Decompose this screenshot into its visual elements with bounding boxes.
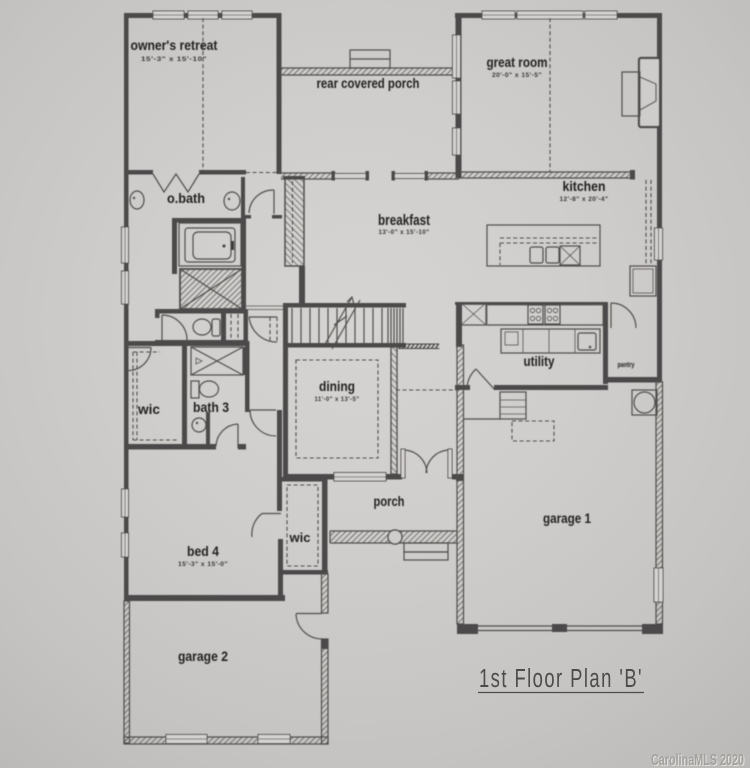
svg-text:great room: great room [487, 54, 548, 70]
svg-text:zzzzzzzzzz: zzzzzzzzzz [398, 340, 439, 352]
svg-text:porch: porch [374, 494, 405, 509]
svg-text:breakfast: breakfast [378, 212, 430, 229]
svg-text:wic: wic [288, 531, 310, 545]
svg-text:owner's retreat: owner's retreat [131, 37, 218, 53]
svg-text:dining: dining [319, 378, 355, 394]
svg-text:garage 1: garage 1 [543, 510, 591, 526]
svg-text:11'-0" x 13'-5": 11'-0" x 13'-5" [315, 396, 360, 403]
svg-text:bath 3: bath 3 [193, 400, 229, 415]
svg-text:utility: utility [524, 354, 555, 369]
svg-text:bed 4: bed 4 [187, 543, 219, 559]
svg-text:pantry: pantry [618, 362, 635, 369]
svg-text:kitchen: kitchen [563, 178, 606, 194]
svg-text:1st Floor Plan 'B': 1st Floor Plan 'B' [479, 665, 643, 693]
svg-text:CarolinaMLS 2020: CarolinaMLS 2020 [651, 752, 744, 768]
svg-text:15'-3" x 15'-0": 15'-3" x 15'-0" [178, 561, 228, 568]
svg-text:13'-0" x 15'-10": 13'-0" x 15'-10" [379, 229, 430, 236]
svg-text:wic: wic [137, 402, 161, 417]
svg-text:o.bath: o.bath [167, 191, 205, 206]
svg-text:rear covered porch: rear covered porch [317, 75, 420, 91]
svg-text:15'-3" x 15'-10": 15'-3" x 15'-10" [141, 56, 207, 63]
svg-text:20'-0" x 15'-5": 20'-0" x 15'-5" [492, 72, 542, 79]
svg-text:garage 2: garage 2 [178, 648, 228, 664]
svg-text:12'-8" x 20'-4": 12'-8" x 20'-4" [560, 196, 609, 203]
